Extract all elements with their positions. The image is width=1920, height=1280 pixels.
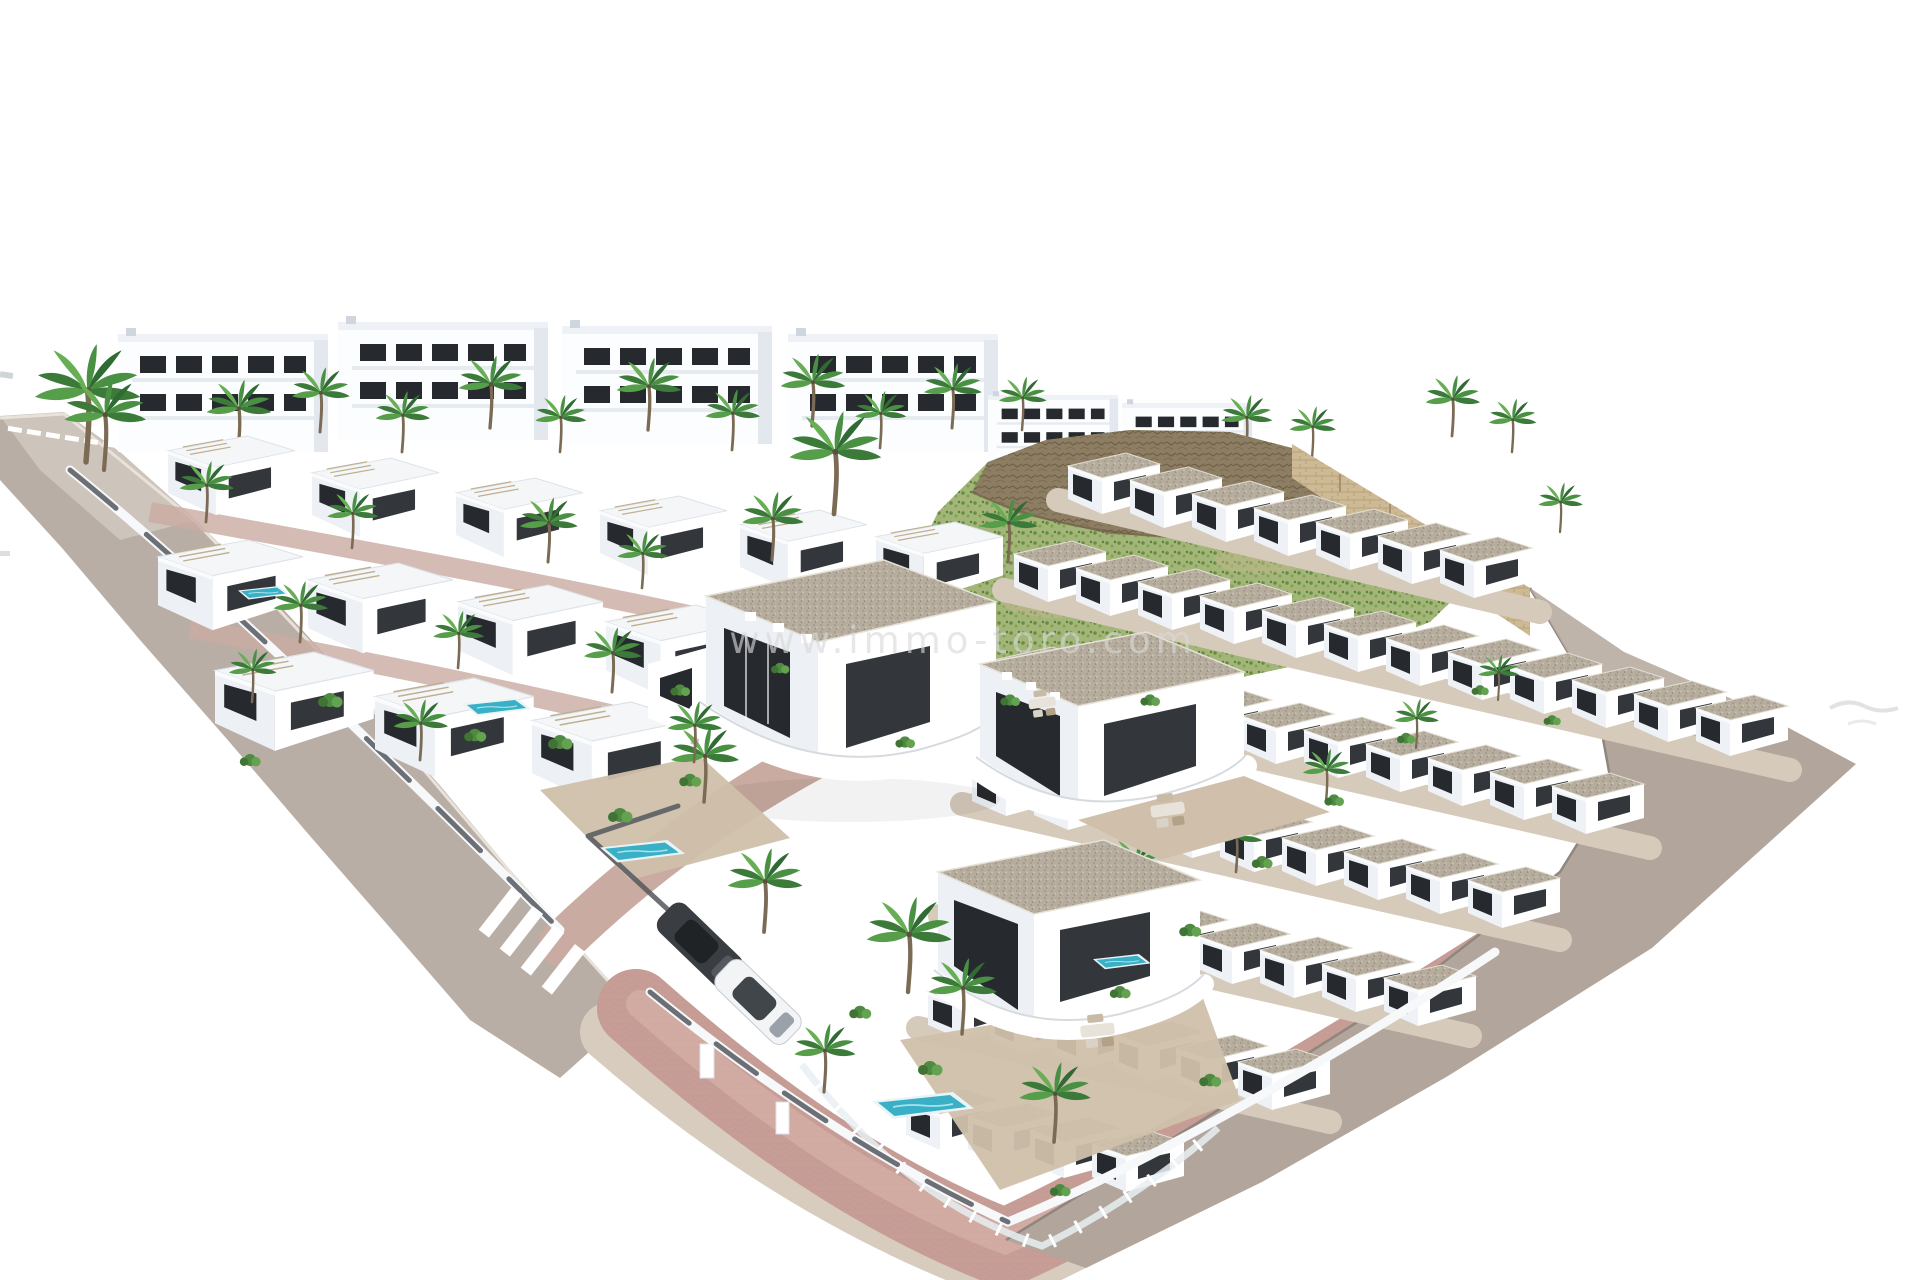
aerial-villa-development-render: www.immo-toro.com xyxy=(0,0,1920,1280)
apartment-block xyxy=(338,316,548,440)
gate-pillar xyxy=(776,1102,789,1134)
render-canvas: www.immo-toro.com xyxy=(0,0,1920,1280)
apartment-block xyxy=(562,320,772,444)
gate-pillar xyxy=(700,1044,714,1078)
watermark-text: www.immo-toro.com xyxy=(729,619,1197,662)
